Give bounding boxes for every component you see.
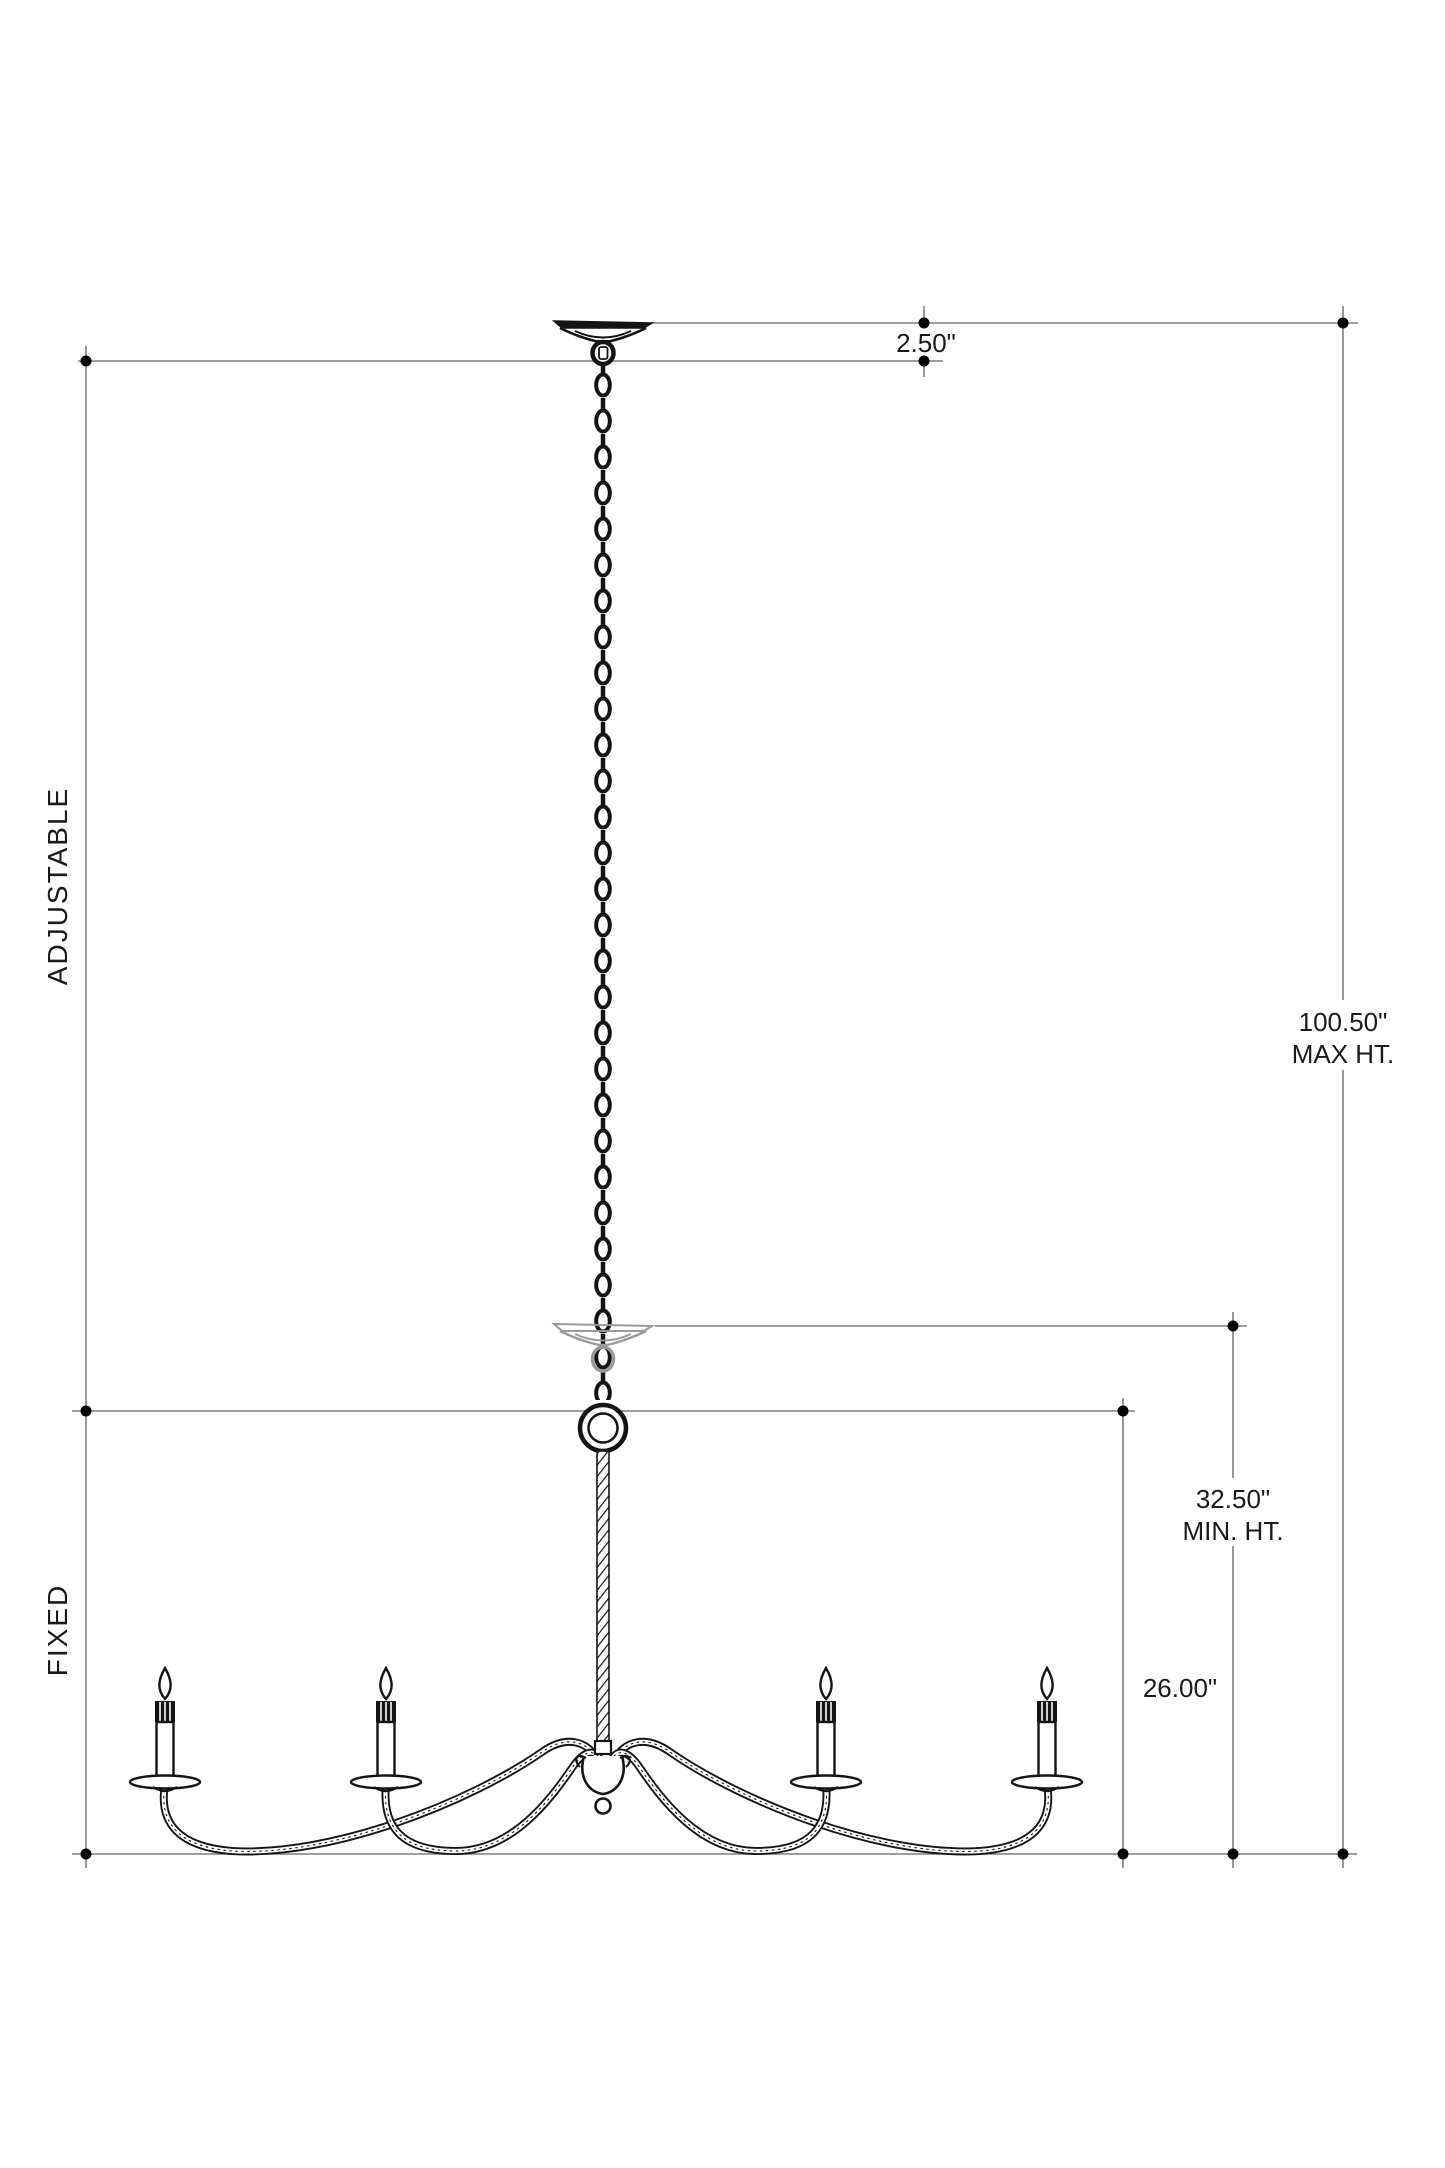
dimension-lines (72, 306, 1358, 1868)
stem-ferrule (595, 1741, 611, 1754)
candle-4 (1012, 1668, 1082, 1791)
dim-text-canopy-height: 2.50" (896, 328, 956, 358)
hanging-chain (594, 362, 612, 1400)
label-adjustable: ADJUSTABLE (42, 787, 73, 985)
stem-ring (580, 1405, 626, 1451)
dim-text-min-height-label: MIN. HT. (1182, 1516, 1283, 1546)
hub-bell (582, 1756, 623, 1794)
rope-stem (597, 1451, 609, 1743)
chandelier-dimension-diagram: 2.50" 100.50" MAX HT. 32.50" MIN. HT. 26… (0, 0, 1445, 2168)
drawing-sheet: 2.50" 100.50" MAX HT. 32.50" MIN. HT. 26… (0, 0, 1445, 2168)
candle-3 (791, 1668, 861, 1791)
label-fixed: FIXED (42, 1584, 73, 1676)
candle-2 (351, 1668, 421, 1791)
canopy-rim (554, 321, 652, 328)
dim-text-min-height-value: 32.50" (1196, 1484, 1270, 1514)
dimension-dots (81, 318, 1349, 1860)
dim-text-max-height-value: 100.50" (1299, 1007, 1388, 1037)
candle-1 (130, 1668, 200, 1791)
ceiling-canopy (554, 321, 652, 364)
canopy-loop-slot (599, 347, 608, 359)
dim-text-body-height: 26.00" (1143, 1673, 1217, 1703)
dim-text-max-height-label: MAX HT. (1292, 1039, 1395, 1069)
finial-ball (596, 1799, 611, 1814)
